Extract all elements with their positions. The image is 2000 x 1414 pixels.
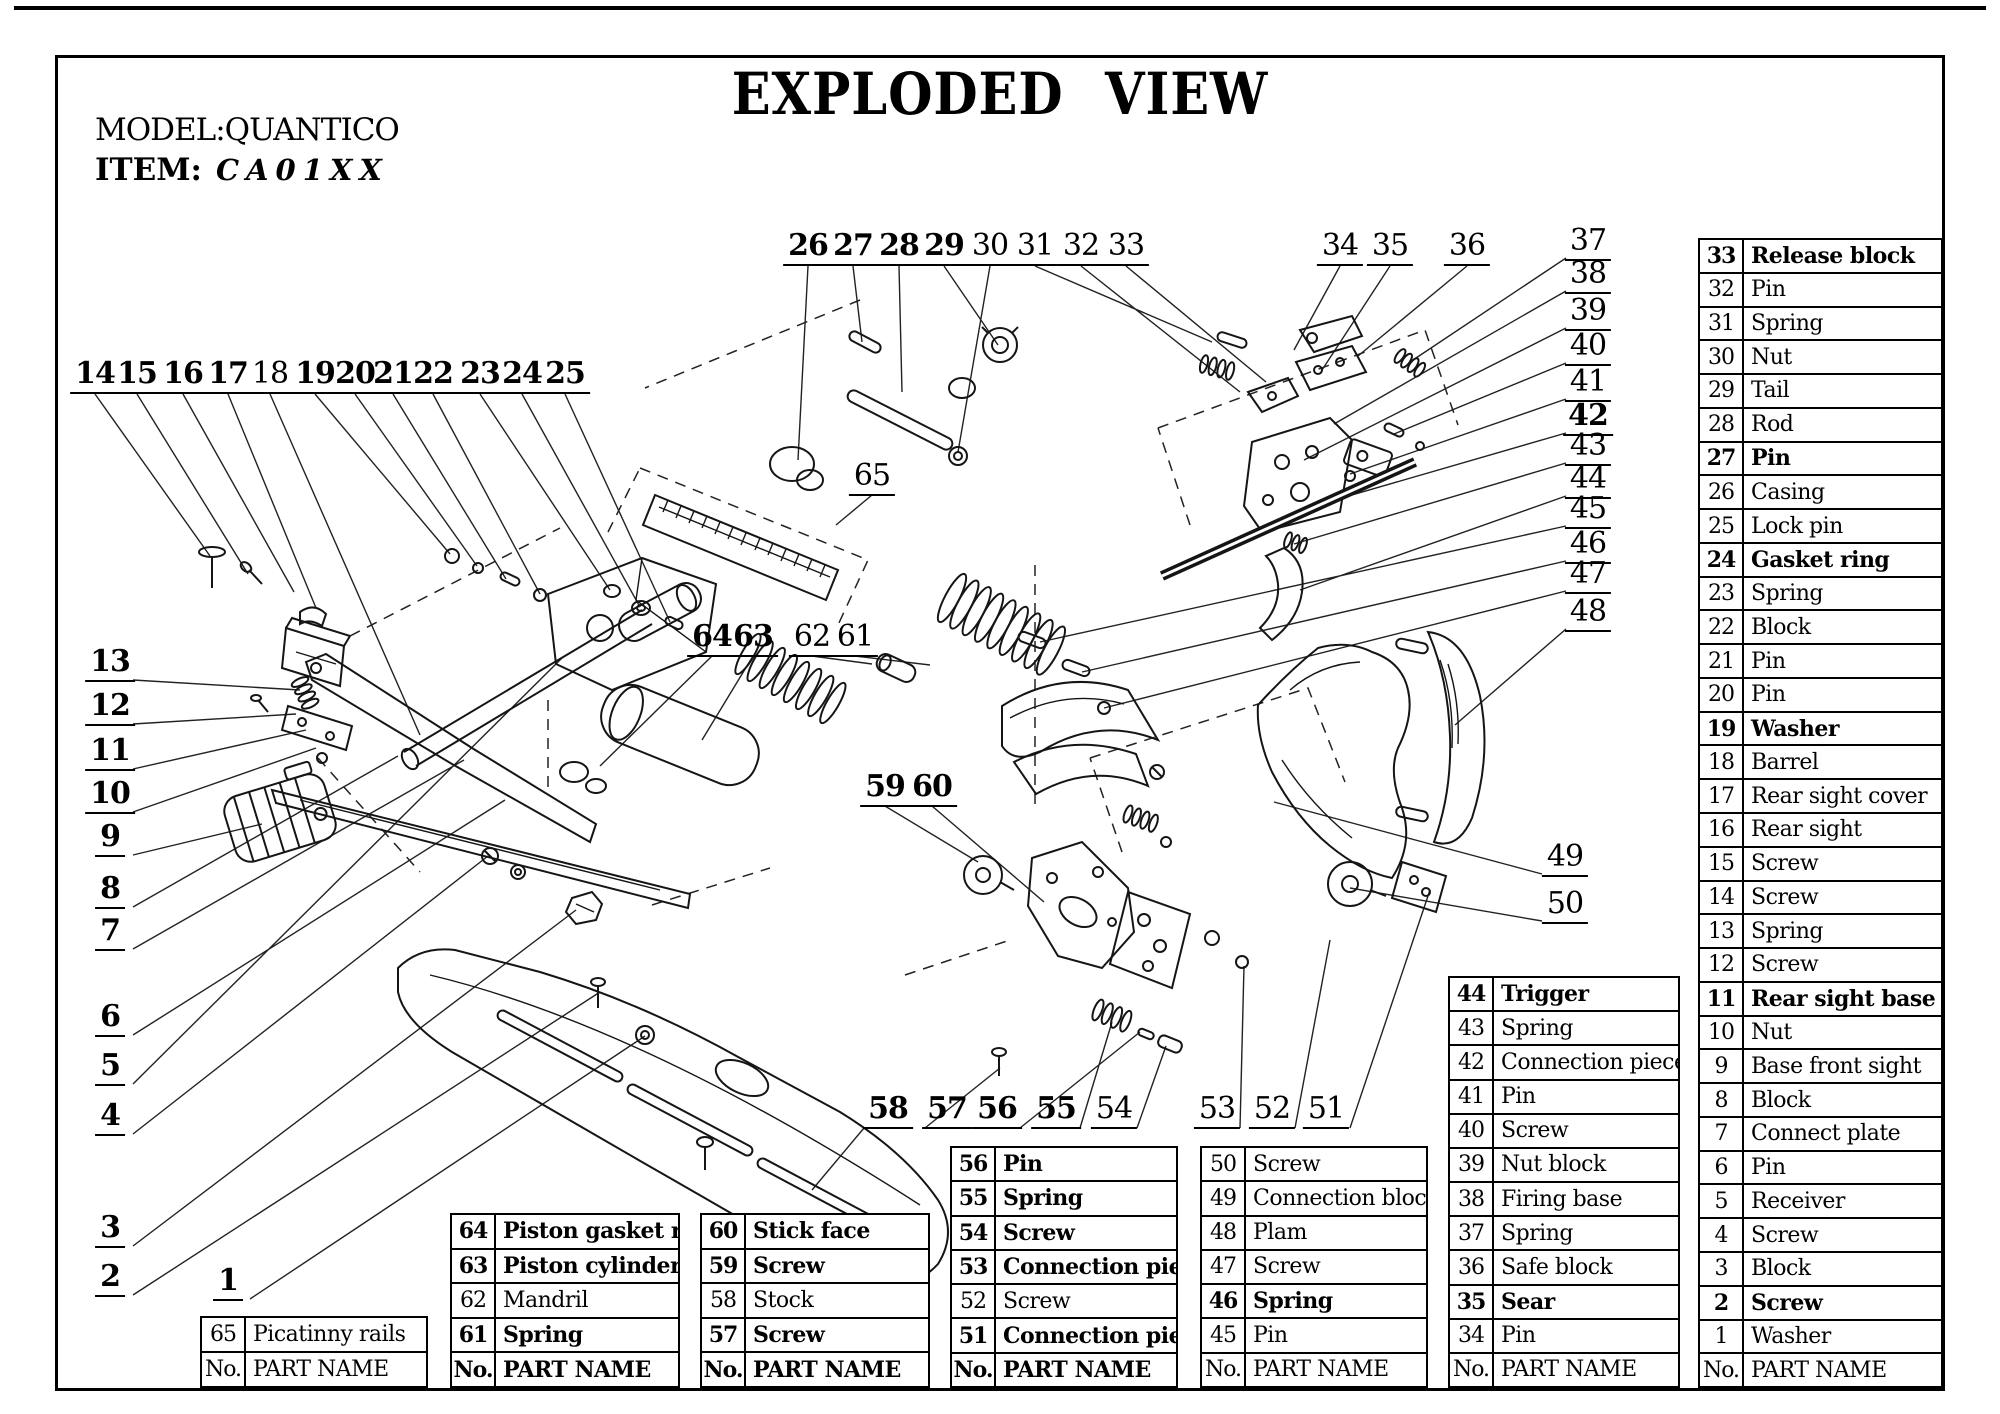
part-no: 20 <box>1700 679 1744 711</box>
part-no: 31 <box>1700 308 1744 340</box>
part-no: 25 <box>1700 510 1744 542</box>
part-no: 49 <box>1202 1182 1246 1214</box>
callout-36: 36 <box>1444 231 1490 266</box>
callout-7: 7 <box>95 916 125 951</box>
part-name: Screw <box>996 1285 1176 1317</box>
part-name: Rear sight base <box>1744 983 1941 1015</box>
callout-11: 11 <box>85 736 135 771</box>
picatinny-rail <box>643 495 838 600</box>
part-row: 38Firing base <box>1450 1181 1678 1215</box>
part-no: 6 <box>1700 1152 1744 1184</box>
part-row: 8Block <box>1700 1082 1941 1116</box>
part-no: 19 <box>1700 713 1744 745</box>
part-row: 15Screw <box>1700 846 1941 880</box>
part-no: 11 <box>1700 983 1744 1015</box>
table-footer-row: No.PART NAME <box>1202 1352 1426 1386</box>
part-name: Screw <box>1744 1219 1941 1251</box>
part-name: PART NAME <box>1744 1354 1941 1386</box>
part-name: Stock <box>746 1284 928 1317</box>
part-row: 29Tail <box>1700 373 1941 407</box>
part-row: 58Stock <box>702 1282 928 1317</box>
part-no: 21 <box>1700 645 1744 677</box>
parts-table-50-45: 50Screw49Connection block48Plam47Screw46… <box>1200 1146 1428 1388</box>
connect-plate <box>272 790 690 908</box>
part-row: 11Rear sight base <box>1700 981 1941 1015</box>
part-row: 14Screw <box>1700 880 1941 914</box>
callout-50: 50 <box>1542 889 1588 924</box>
part-no: No. <box>1450 1354 1494 1386</box>
part-name: Screw <box>746 1319 928 1352</box>
part-no: 43 <box>1450 1012 1494 1044</box>
part-row: 4Screw <box>1700 1217 1941 1251</box>
table-footer-row: No.PART NAME <box>1700 1352 1941 1386</box>
part-row: 5Receiver <box>1700 1183 1941 1217</box>
part-name: Screw <box>1744 1287 1941 1319</box>
callout-29: 29 <box>919 231 969 266</box>
trigger-group <box>1162 316 1427 640</box>
stick-face <box>964 682 1158 894</box>
part-name: Spring <box>1494 1012 1678 1044</box>
part-name: Mandril <box>496 1284 678 1317</box>
callout-53: 53 <box>1194 1094 1240 1129</box>
part-name: Spring <box>496 1319 678 1352</box>
callout-5: 5 <box>95 1051 125 1086</box>
part-row: 12Screw <box>1700 947 1941 981</box>
part-name: Rod <box>1744 409 1941 441</box>
part-row: 42Connection piece <box>1450 1044 1678 1078</box>
part-no: 59 <box>702 1250 746 1283</box>
part-name: Spring <box>1744 915 1941 947</box>
part-name: Spring <box>1494 1217 1678 1249</box>
part-no: 9 <box>1700 1050 1744 1082</box>
part-name: PART NAME <box>746 1353 928 1386</box>
part-row: 34Pin <box>1450 1318 1678 1352</box>
part-row: 41Pin <box>1450 1079 1678 1113</box>
part-name: Screw <box>996 1217 1176 1249</box>
part-no: 52 <box>952 1285 996 1317</box>
piston-cylinder <box>593 676 768 793</box>
callout-10: 10 <box>85 779 135 814</box>
part-row: 16Rear sight <box>1700 812 1941 846</box>
part-no: 42 <box>1450 1046 1494 1078</box>
part-no: 40 <box>1450 1115 1494 1147</box>
part-name: PART NAME <box>246 1353 426 1386</box>
part-no: 39 <box>1450 1149 1494 1181</box>
part-no: No. <box>952 1354 996 1386</box>
part-row: 32Pin <box>1700 272 1941 306</box>
callout-65: 65 <box>849 461 895 496</box>
callout-35: 35 <box>1367 231 1413 266</box>
part-no: 60 <box>702 1215 746 1248</box>
part-no: 45 <box>1202 1319 1246 1351</box>
part-no: 3 <box>1700 1253 1744 1285</box>
part-name: Barrel <box>1744 746 1941 778</box>
part-name: Pin <box>1494 1320 1678 1352</box>
part-name: Tail <box>1744 375 1941 407</box>
callout-28: 28 <box>874 231 924 266</box>
part-name: Receiver <box>1744 1185 1941 1217</box>
callout-61: 61 <box>832 622 878 657</box>
callout-47: 47 <box>1565 559 1611 594</box>
part-no: 14 <box>1700 882 1744 914</box>
part-row: 6Pin <box>1700 1150 1941 1184</box>
part-no: 44 <box>1450 978 1494 1010</box>
callout-6: 6 <box>95 1002 125 1037</box>
part-no: 29 <box>1700 375 1744 407</box>
part-name: Nut <box>1744 1017 1941 1049</box>
part-name: Sear <box>1494 1286 1678 1318</box>
part-name: Pin <box>1744 443 1941 475</box>
part-no: 35 <box>1450 1286 1494 1318</box>
part-row: 45Pin <box>1202 1317 1426 1351</box>
parts-table-main: 33Release block32Pin31Spring30Nut29Tail2… <box>1698 238 1943 1388</box>
part-name: Rear sight cover <box>1744 780 1941 812</box>
callout-18: 18 <box>247 359 293 394</box>
part-no: 7 <box>1700 1118 1744 1150</box>
part-row: 36Safe block <box>1450 1249 1678 1283</box>
part-no: 41 <box>1450 1081 1494 1113</box>
callout-13: 13 <box>85 647 135 682</box>
part-no: 38 <box>1450 1183 1494 1215</box>
part-row: 59Screw <box>702 1248 928 1283</box>
part-no: 22 <box>1700 611 1744 643</box>
part-row: 7Connect plate <box>1700 1116 1941 1150</box>
part-name: Pin <box>1744 679 1941 711</box>
front-sight-base <box>217 759 340 866</box>
part-row: 60Stick face <box>702 1215 928 1248</box>
part-name: Base front sight <box>1744 1050 1941 1082</box>
rear-stock <box>1258 632 1485 912</box>
part-no: 24 <box>1700 544 1744 576</box>
part-row: 52Screw <box>952 1283 1176 1317</box>
piston-gasket-ring <box>560 762 588 782</box>
part-row: 54Screw <box>952 1215 1176 1249</box>
callout-15: 15 <box>112 359 162 394</box>
callout-25: 25 <box>540 359 590 394</box>
part-no: 51 <box>952 1319 996 1351</box>
part-row: 46Spring <box>1202 1283 1426 1317</box>
part-row: 63Piston cylinder <box>452 1248 678 1283</box>
part-no: 53 <box>952 1251 996 1283</box>
part-row: 10Nut <box>1700 1015 1941 1049</box>
part-name: Firing base <box>1494 1183 1678 1215</box>
part-no: 65 <box>202 1318 246 1351</box>
callout-49: 49 <box>1542 842 1588 877</box>
part-no: 46 <box>1202 1285 1246 1317</box>
callout-1: 1 <box>213 1266 243 1301</box>
part-no: 32 <box>1700 274 1744 306</box>
part-no: 10 <box>1700 1017 1744 1049</box>
part-no: 61 <box>452 1319 496 1352</box>
part-name: Spring <box>1744 308 1941 340</box>
part-row: 19Washer <box>1700 711 1941 745</box>
part-no: No. <box>202 1353 246 1386</box>
part-name: Screw <box>1744 848 1941 880</box>
part-no: 36 <box>1450 1251 1494 1283</box>
part-name: Connection piece <box>996 1251 1176 1283</box>
callout-52: 52 <box>1249 1094 1295 1129</box>
callout-9: 9 <box>95 822 125 857</box>
part-name: Rear sight <box>1744 814 1941 846</box>
callout-60: 60 <box>907 772 957 807</box>
part-row: 43Spring <box>1450 1010 1678 1044</box>
callout-48: 48 <box>1565 597 1611 632</box>
part-row: 25Lock pin <box>1700 508 1941 542</box>
part-row: 48Plam <box>1202 1215 1426 1249</box>
part-name: Screw <box>1246 1251 1426 1283</box>
part-name: Gasket ring <box>1744 544 1941 576</box>
part-row: 35Sear <box>1450 1284 1678 1318</box>
part-name: Pin <box>1744 1152 1941 1184</box>
part-name: Screw <box>1494 1115 1678 1147</box>
part-name: Safe block <box>1494 1251 1678 1283</box>
table-footer-row: No.PART NAME <box>1450 1352 1678 1386</box>
part-name: Trigger <box>1494 978 1678 1010</box>
callout-59: 59 <box>860 772 910 807</box>
part-name: Spring <box>1744 578 1941 610</box>
part-row: 31Spring <box>1700 306 1941 340</box>
part-name: Connection piece <box>996 1319 1176 1351</box>
part-row: 24Gasket ring <box>1700 542 1941 576</box>
callout-55: 55 <box>1031 1094 1081 1129</box>
part-no: 63 <box>452 1250 496 1283</box>
part-name: Screw <box>1246 1148 1426 1180</box>
parts-table-60-57: 60Stick face59Screw58Stock57ScrewNo.PART… <box>700 1213 930 1388</box>
part-name: PART NAME <box>996 1354 1176 1386</box>
part-name: Pin <box>1246 1319 1426 1351</box>
callout-26: 26 <box>783 231 833 266</box>
part-name: Connection block <box>1246 1182 1426 1214</box>
part-row: 22Block <box>1700 609 1941 643</box>
part-row: 56Pin <box>952 1148 1176 1180</box>
part-row: 57Screw <box>702 1317 928 1352</box>
part-row: 26Casing <box>1700 474 1941 508</box>
part-no: 15 <box>1700 848 1744 880</box>
part-row: 3Block <box>1700 1251 1941 1285</box>
part-no: No. <box>702 1353 746 1386</box>
small-rings <box>445 549 684 630</box>
part-row: 55Spring <box>952 1180 1176 1214</box>
part-row: 37Spring <box>1450 1215 1678 1249</box>
part-no: 58 <box>702 1284 746 1317</box>
part-no: 37 <box>1450 1217 1494 1249</box>
callout-41: 41 <box>1565 367 1611 402</box>
part-no: 16 <box>1700 814 1744 846</box>
part-name: Washer <box>1744 713 1941 745</box>
part-name: Block <box>1744 1084 1941 1116</box>
part-row: 18Barrel <box>1700 744 1941 778</box>
part-row: 13Spring <box>1700 913 1941 947</box>
part-name: Stick face <box>746 1215 928 1248</box>
part-no: 27 <box>1700 443 1744 475</box>
part-row: 62Mandril <box>452 1282 678 1317</box>
part-no: 28 <box>1700 409 1744 441</box>
part-name: Block <box>1744 1253 1941 1285</box>
callout-27: 27 <box>828 231 878 266</box>
callout-33: 33 <box>1103 231 1149 266</box>
part-name: Pin <box>1744 645 1941 677</box>
part-row: 21Pin <box>1700 643 1941 677</box>
barrel <box>398 578 705 772</box>
part-no: 56 <box>952 1148 996 1180</box>
part-row: 2Screw <box>1700 1285 1941 1319</box>
part-name: PART NAME <box>1494 1354 1678 1386</box>
part-row: 9Base front sight <box>1700 1048 1941 1082</box>
part-row: 27Pin <box>1700 441 1941 475</box>
table-footer-row: No.PART NAME <box>702 1351 928 1386</box>
part-name: Spring <box>1246 1285 1426 1317</box>
part-row: 23Spring <box>1700 576 1941 610</box>
part-name: Pin <box>1744 274 1941 306</box>
parts-table-64-61: 64Piston gasket ring63Piston cylinder62M… <box>450 1213 680 1388</box>
part-name: Screw <box>1744 949 1941 981</box>
callout-17: 17 <box>203 359 253 394</box>
part-name: PART NAME <box>496 1353 678 1386</box>
part-no: 64 <box>452 1215 496 1248</box>
main-spring <box>933 571 1070 678</box>
part-row: 44Trigger <box>1450 978 1678 1010</box>
part-row: 1Washer <box>1700 1319 1941 1353</box>
part-name: Washer <box>1744 1321 1941 1353</box>
parts-table-65: 65Picatinny railsNo.PART NAME <box>200 1316 428 1388</box>
callout-34: 34 <box>1317 231 1363 266</box>
part-no: 23 <box>1700 578 1744 610</box>
callout-62: 62 <box>789 622 835 657</box>
callout-40: 40 <box>1565 331 1611 366</box>
part-row: 17Rear sight cover <box>1700 778 1941 812</box>
part-no: 48 <box>1202 1217 1246 1249</box>
part-name: Nut <box>1744 341 1941 373</box>
part-name: Picatinny rails <box>246 1318 426 1351</box>
part-no: 5 <box>1700 1185 1744 1217</box>
part-row: 33Release block <box>1700 240 1941 272</box>
part-row: 20Pin <box>1700 677 1941 711</box>
part-no: 33 <box>1700 240 1744 272</box>
exploded-view-sheet: { "page": { "title": "EXPLODED VIEW", "m… <box>0 0 2000 1414</box>
cocking-arm <box>306 654 596 842</box>
part-no: 12 <box>1700 949 1744 981</box>
callout-57: 57 <box>922 1094 972 1129</box>
part-name: Nut block <box>1494 1149 1678 1181</box>
part-name: Casing <box>1744 476 1941 508</box>
part-row: 50Screw <box>1202 1148 1426 1180</box>
callout-39: 39 <box>1565 296 1611 331</box>
part-row: 53Connection piece <box>952 1249 1176 1283</box>
part-name: Lock pin <box>1744 510 1941 542</box>
part-row: 51Connection piece <box>952 1317 1176 1351</box>
table-footer-row: No.PART NAME <box>952 1352 1176 1386</box>
part-no: No. <box>452 1353 496 1386</box>
part-row: 49Connection block <box>1202 1180 1426 1214</box>
part-name: Pin <box>996 1148 1176 1180</box>
table-footer-row: No.PART NAME <box>202 1351 426 1386</box>
part-name: Pin <box>1494 1081 1678 1113</box>
table-footer-row: No.PART NAME <box>452 1351 678 1386</box>
part-no: 57 <box>702 1319 746 1352</box>
parts-table-56-51: 56Pin55Spring54Screw53Connection piece52… <box>950 1146 1178 1388</box>
part-no: 26 <box>1700 476 1744 508</box>
parts-table-44-34: 44Trigger43Spring42Connection piece41Pin… <box>1448 976 1680 1388</box>
part-no: 1 <box>1700 1321 1744 1353</box>
part-name: Piston gasket ring <box>496 1215 678 1248</box>
callout-22: 22 <box>408 359 458 394</box>
part-no: No. <box>1700 1354 1744 1386</box>
part-name: Connection piece <box>1494 1046 1678 1078</box>
callout-30: 30 <box>967 231 1013 266</box>
part-row: 30Nut <box>1700 339 1941 373</box>
part-no: 62 <box>452 1284 496 1317</box>
callout-16: 16 <box>158 359 208 394</box>
part-name: Spring <box>996 1182 1176 1214</box>
part-no: 55 <box>952 1182 996 1214</box>
callout-56: 56 <box>972 1094 1022 1129</box>
callout-8: 8 <box>95 874 125 909</box>
part-no: 47 <box>1202 1251 1246 1283</box>
callout-64: 64 <box>687 622 737 657</box>
part-name: Screw <box>746 1250 928 1283</box>
callout-38: 38 <box>1565 259 1611 294</box>
part-name: Screw <box>1744 882 1941 914</box>
part-no: 17 <box>1700 780 1744 812</box>
callout-45: 45 <box>1565 494 1611 529</box>
part-no: 54 <box>952 1217 996 1249</box>
part-no: 4 <box>1700 1219 1744 1251</box>
callout-12: 12 <box>85 691 135 726</box>
callout-4: 4 <box>95 1101 125 1136</box>
part-name: Block <box>1744 611 1941 643</box>
part-no: 34 <box>1450 1320 1494 1352</box>
part-row: 64Piston gasket ring <box>452 1215 678 1248</box>
part-row: 28Rod <box>1700 407 1941 441</box>
part-no: 2 <box>1700 1287 1744 1319</box>
part-row: 47Screw <box>1202 1249 1426 1283</box>
grip-connection-cluster <box>992 765 1248 1076</box>
part-no: 13 <box>1700 915 1744 947</box>
part-no: 8 <box>1700 1084 1744 1116</box>
mandril <box>874 651 918 684</box>
part-name: Piston cylinder <box>496 1250 678 1283</box>
callout-51: 51 <box>1303 1094 1349 1129</box>
callout-54: 54 <box>1091 1094 1137 1129</box>
part-row: 61Spring <box>452 1317 678 1352</box>
callout-2: 2 <box>95 1262 125 1297</box>
part-row: 39Nut block <box>1450 1147 1678 1181</box>
part-row: 65Picatinny rails <box>202 1318 426 1351</box>
part-name: Plam <box>1246 1217 1426 1249</box>
part-no: 30 <box>1700 341 1744 373</box>
callout-58: 58 <box>863 1094 913 1129</box>
part-no: No. <box>1202 1354 1246 1386</box>
part-name: Release block <box>1744 240 1941 272</box>
part-no: 50 <box>1202 1148 1246 1180</box>
part-no: 18 <box>1700 746 1744 778</box>
callout-3: 3 <box>95 1213 125 1248</box>
part-name: PART NAME <box>1246 1354 1426 1386</box>
part-row: 40Screw <box>1450 1113 1678 1147</box>
part-name: Connect plate <box>1744 1118 1941 1150</box>
callout-31: 31 <box>1012 231 1058 266</box>
callout-32: 32 <box>1058 231 1104 266</box>
